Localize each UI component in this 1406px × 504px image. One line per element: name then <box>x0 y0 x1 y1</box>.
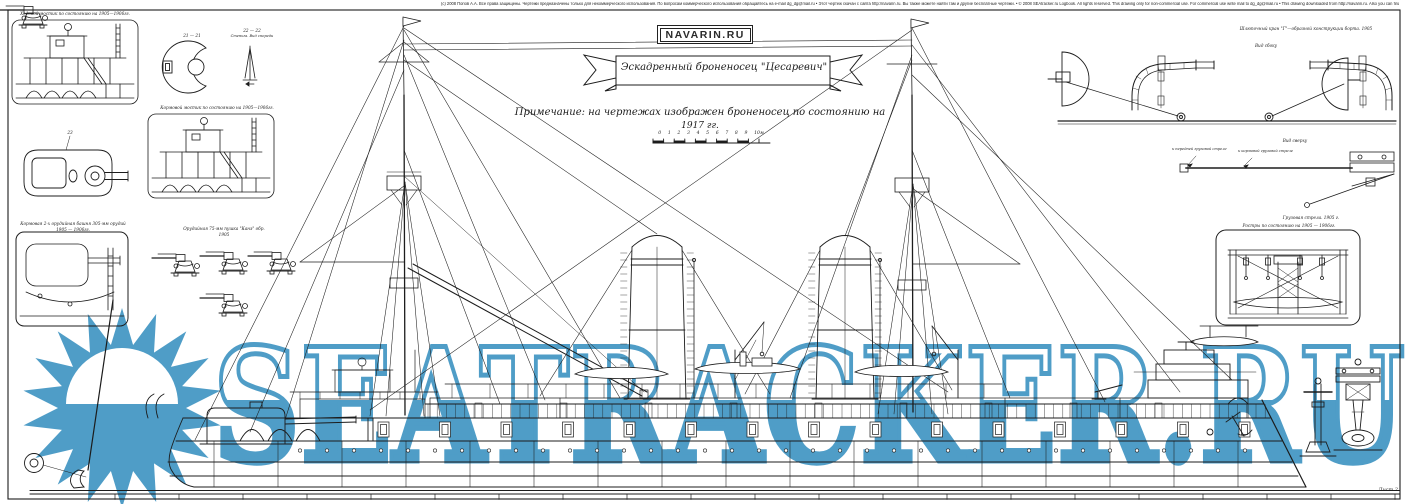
detail-bridge-aft <box>148 114 274 198</box>
aft-platform-posts <box>300 392 420 399</box>
detail-gun-2 <box>200 252 248 274</box>
copyright-line: (c) 2008 Попов А.А. Все права защищены. … <box>441 2 1399 7</box>
caption-bridge-aft: Кормовой мостик по состоянию на 1905—190… <box>150 105 284 110</box>
hull-plate-seams <box>214 441 1238 487</box>
boat-deck-posts <box>452 384 984 398</box>
label-section-b: 22 — 22 <box>228 28 276 33</box>
sheet-label: Лист 2 <box>1352 487 1398 493</box>
note-line-1: Примечание: на чертежах изображен бронен… <box>480 107 920 119</box>
site-badge-label: NAVARIN.RU <box>660 28 751 42</box>
detail-section-topmast <box>243 46 257 86</box>
caption-rostra: Ростры по состоянию на 1905 — 1906гг. <box>1220 223 1358 228</box>
detail-capstans <box>1300 359 1382 456</box>
caption-bridge-fore: Ходовой мостик по состоянию на 1905—1906… <box>14 11 136 16</box>
main-mast <box>887 19 1020 412</box>
scale-numbers: 0 1 2 3 4 5 6 7 8 9 10м <box>649 131 773 137</box>
rigging <box>195 26 1232 440</box>
label-boom-2: к кормовой грузовой стреле <box>1238 149 1318 153</box>
title-banner-text: Эскадренный броненосец "Цесаревич" <box>620 62 828 74</box>
stern-gear <box>25 300 374 488</box>
detail-section-crescent <box>162 41 206 93</box>
label-section-a: 21 — 21 <box>170 33 214 38</box>
detail-gun-glyph <box>0 6 48 28</box>
detail-gun-1 <box>152 254 200 276</box>
label-boom-view: Вид сверху <box>1262 138 1328 143</box>
davit-arm-icon <box>1132 56 1214 110</box>
mid-deckhouse <box>430 384 1248 418</box>
scale-bar <box>653 139 770 143</box>
caption-guns-2: 1905 <box>150 232 298 237</box>
fore-mast <box>300 17 429 415</box>
station-ticks <box>115 494 1395 500</box>
label-davits-view: Вид сбоку <box>1236 43 1296 48</box>
detail-gun-4 <box>200 294 248 316</box>
caption-turret-box-1: Кормовая 2-х орудийная башня 305-мм оруд… <box>14 221 132 226</box>
aft-turret <box>200 402 356 444</box>
portholes <box>298 449 1246 452</box>
site-badge: NAVARIN.RU <box>657 25 753 44</box>
caption-section-b: Стеньга. Вид спереди <box>226 34 278 38</box>
aft-superstructure <box>290 350 438 418</box>
caption-guns-1: Орудийная 75-мм пушка "Канэ" обр. <box>150 226 298 231</box>
detail-rostra-box <box>1216 230 1360 325</box>
blueprint-line-art <box>0 0 1406 504</box>
caption-davits: Шлюпочный кран "Г"—образной конструкции … <box>1218 26 1394 31</box>
caption-boom: Грузовая стрела. 1905 г. <box>1256 215 1366 220</box>
caption-turret-box-2: 1905 — 1906гг. <box>14 227 132 232</box>
detail-bridge-fore <box>12 20 138 104</box>
boat-derrick <box>404 176 648 398</box>
detail-turret-plan <box>24 136 128 196</box>
label-turret-plan: 23 <box>50 130 90 135</box>
casemate-ports <box>378 422 1250 437</box>
bulwark-rail-posts <box>428 405 1265 419</box>
deckhouse-doors <box>475 403 1162 418</box>
detail-boom-topview <box>1180 152 1394 208</box>
blueprint-sheet: SEATRACKER.RU SEATRACKER.RU <box>0 0 1406 504</box>
